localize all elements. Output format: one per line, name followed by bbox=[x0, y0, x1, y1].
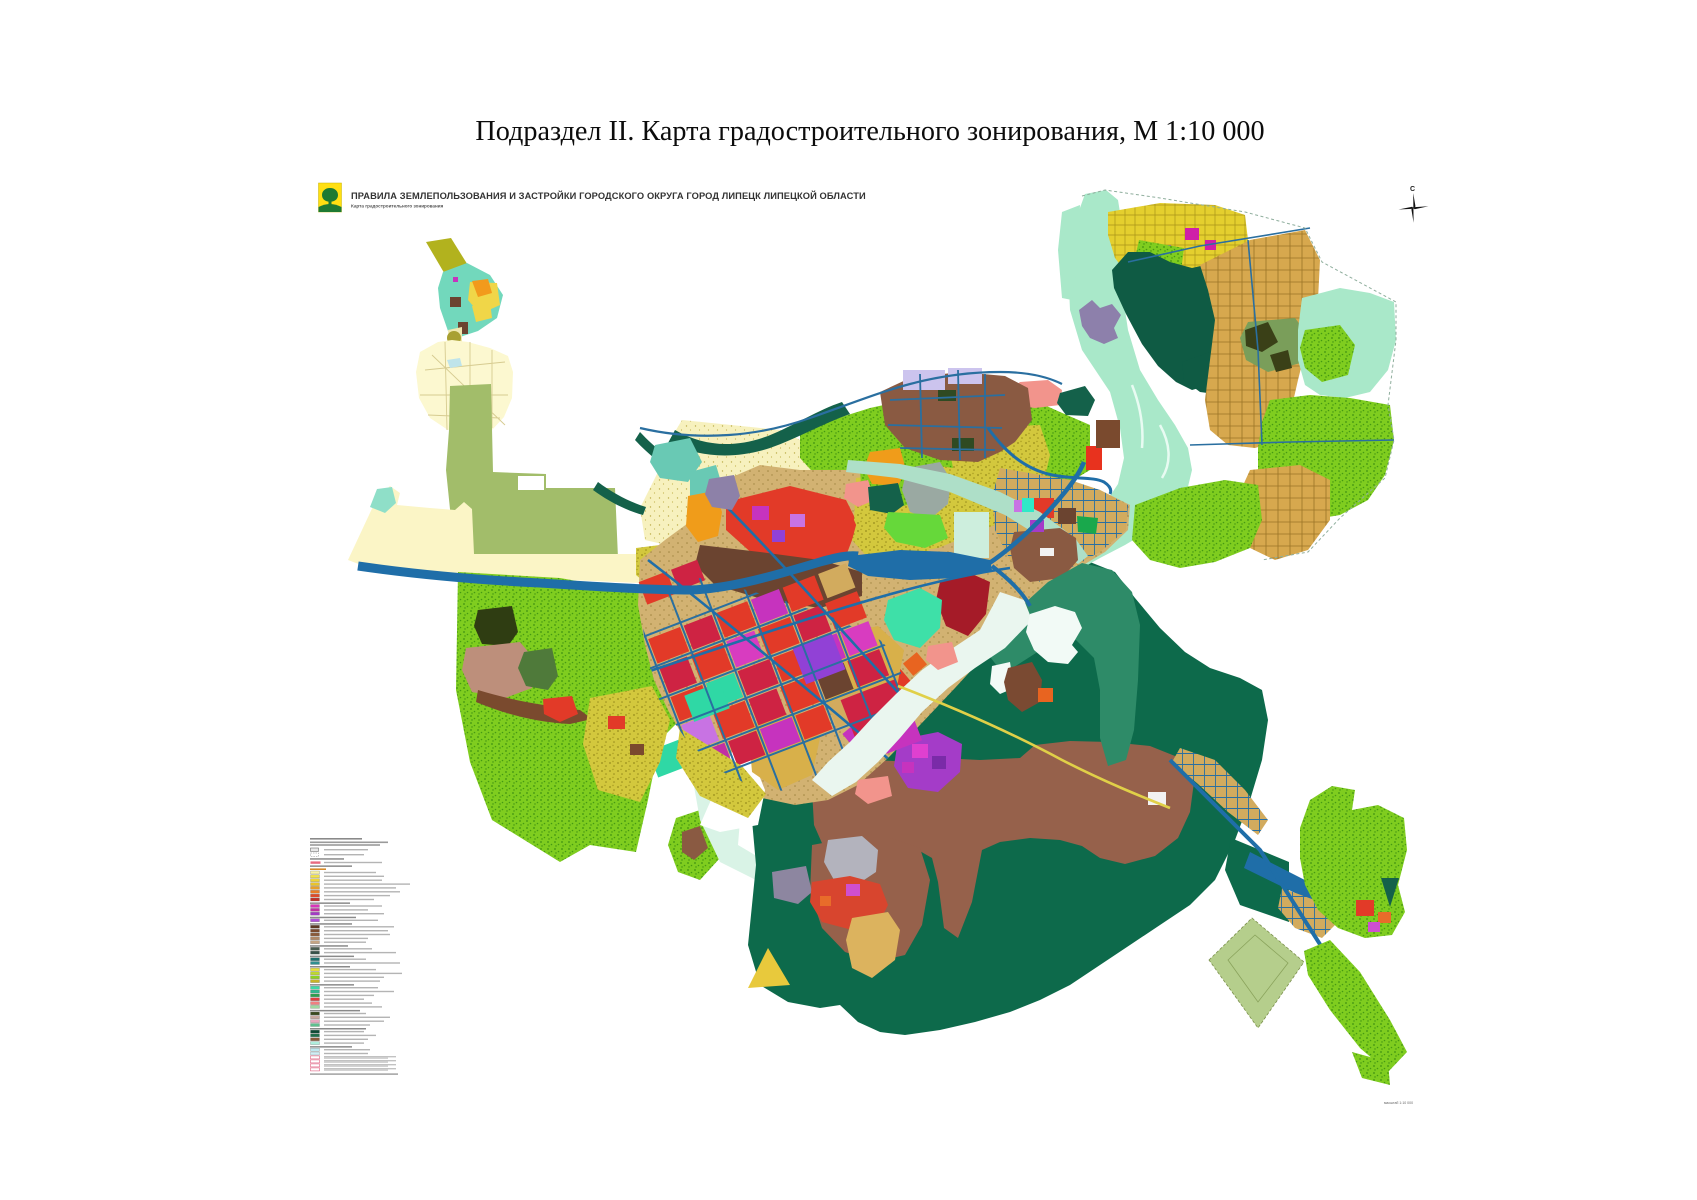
svg-text:Подраздел II. Карта градострои: Подраздел II. Карта градостроительного з… bbox=[475, 116, 1264, 147]
svg-text:С: С bbox=[1410, 186, 1415, 193]
svg-text:Карта градостроительного зонир: Карта градостроительного зонирования bbox=[351, 204, 444, 209]
svg-text:ПРАВИЛА ЗЕМЛЕПОЛЬЗОВАНИЯ И ЗАС: ПРАВИЛА ЗЕМЛЕПОЛЬЗОВАНИЯ И ЗАСТРОЙКИ ГОР… bbox=[351, 190, 866, 201]
svg-text:масштаб 1:10 000: масштаб 1:10 000 bbox=[1384, 1101, 1413, 1105]
